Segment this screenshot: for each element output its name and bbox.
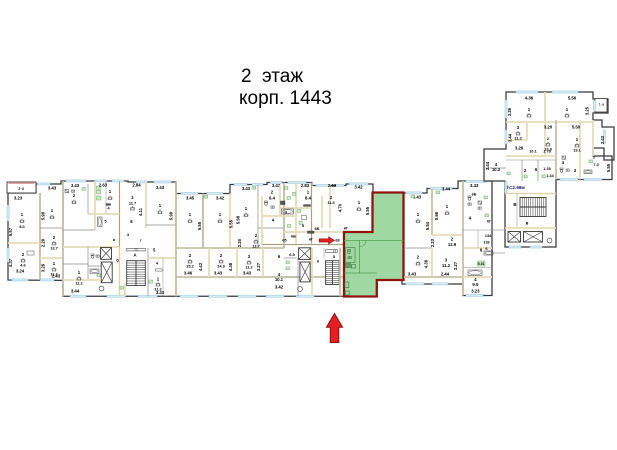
svg-text:2.84: 2.84 <box>132 183 141 188</box>
svg-text:в: в <box>526 221 529 226</box>
svg-text:4.6: 4.6 <box>20 263 26 268</box>
svg-text:3.46: 3.46 <box>184 270 193 275</box>
svg-text:5.55: 5.55 <box>197 221 202 230</box>
svg-text:13.7: 13.7 <box>252 244 260 249</box>
svg-text:2.63: 2.63 <box>99 182 108 187</box>
svg-text:3.23: 3.23 <box>14 196 23 201</box>
svg-text:2.83: 2.83 <box>301 183 310 188</box>
svg-text:13.7: 13.7 <box>50 246 58 251</box>
svg-text:2.20: 2.20 <box>237 238 242 247</box>
svg-text:8.4: 8.4 <box>305 196 312 201</box>
svg-text:3.43: 3.43 <box>71 183 80 188</box>
svg-text:3.44: 3.44 <box>71 289 80 294</box>
svg-text:8.0: 8.0 <box>19 225 24 229</box>
svg-text:3.43: 3.43 <box>600 135 605 144</box>
svg-text:14.9: 14.9 <box>217 264 225 269</box>
svg-text:3.43: 3.43 <box>156 185 165 190</box>
svg-text:5.55: 5.55 <box>365 206 370 215</box>
svg-text:11.6: 11.6 <box>327 200 335 205</box>
svg-text:5.56: 5.56 <box>434 211 439 220</box>
svg-text:6.5: 6.5 <box>289 252 295 257</box>
svg-text:3.44: 3.44 <box>485 161 490 170</box>
svg-text:4.38: 4.38 <box>424 259 429 268</box>
svg-text:5.54: 5.54 <box>425 221 430 230</box>
svg-text:4.11: 4.11 <box>138 207 143 216</box>
svg-text:3.27: 3.27 <box>256 262 261 271</box>
svg-text:3.45: 3.45 <box>186 196 195 201</box>
svg-text:1-а: 1-а <box>599 103 605 107</box>
svg-text:3.24: 3.24 <box>16 269 25 274</box>
svg-text:133: 133 <box>483 241 489 245</box>
svg-text:этаж: этаж <box>262 66 303 87</box>
svg-text:4.70: 4.70 <box>338 203 343 212</box>
svg-text:3.42: 3.42 <box>354 185 363 190</box>
svg-text:3.26: 3.26 <box>515 146 524 151</box>
svg-text:2.63: 2.63 <box>328 183 337 188</box>
svg-text:3.27: 3.27 <box>453 261 458 270</box>
svg-text:3.44: 3.44 <box>508 133 513 142</box>
svg-text:6Г: 6Г <box>487 220 491 224</box>
svg-text:11.2: 11.2 <box>442 263 451 268</box>
svg-text:134: 134 <box>485 234 492 238</box>
svg-text:3.28: 3.28 <box>41 263 46 272</box>
svg-text:4.37: 4.37 <box>8 258 13 267</box>
svg-text:5.56: 5.56 <box>568 96 577 101</box>
svg-text:1.34: 1.34 <box>546 174 554 178</box>
svg-text:10.1: 10.1 <box>275 277 284 282</box>
svg-text:9.5: 9.5 <box>472 282 479 287</box>
svg-text:68: 68 <box>335 239 339 243</box>
svg-text:5.57: 5.57 <box>8 227 13 236</box>
svg-text:6Б: 6Б <box>472 192 477 196</box>
svg-text:h=2.68м: h=2.68м <box>507 185 525 190</box>
svg-text:10.3: 10.3 <box>492 167 501 172</box>
svg-text:19.1: 19.1 <box>573 148 581 153</box>
svg-text:3.42: 3.42 <box>275 285 284 290</box>
svg-text:11.2: 11.2 <box>245 265 253 270</box>
svg-text:корп. 1443: корп. 1443 <box>239 88 332 109</box>
svg-text:5.98: 5.98 <box>41 211 46 220</box>
svg-text:7.3: 7.3 <box>593 162 599 167</box>
svg-text:3.44: 3.44 <box>442 187 451 192</box>
svg-text:3.43: 3.43 <box>470 183 479 188</box>
svg-text:3.42: 3.42 <box>216 196 225 201</box>
svg-text:3.43: 3.43 <box>408 272 417 277</box>
svg-text:4.36: 4.36 <box>525 96 534 101</box>
svg-text:3-а: 3-а <box>18 186 25 191</box>
svg-text:4.43: 4.43 <box>198 262 203 271</box>
svg-text:3.20: 3.20 <box>544 125 553 130</box>
svg-text:3.26: 3.26 <box>507 107 512 116</box>
svg-text:5.01: 5.01 <box>478 262 485 266</box>
svg-text:3.43: 3.43 <box>214 270 223 275</box>
svg-text:5.98: 5.98 <box>236 215 241 224</box>
svg-text:3.43: 3.43 <box>243 270 252 275</box>
svg-text:1.35: 1.35 <box>543 167 550 171</box>
svg-text:3.43: 3.43 <box>156 290 165 295</box>
svg-text:6Б: 6Б <box>314 226 319 231</box>
svg-text:11.3: 11.3 <box>514 136 522 141</box>
svg-text:11.7: 11.7 <box>129 201 136 206</box>
svg-text:15.2: 15.2 <box>186 264 194 269</box>
svg-text:2.23: 2.23 <box>430 238 435 247</box>
svg-text:2: 2 <box>241 66 252 87</box>
svg-text:65: 65 <box>282 239 286 243</box>
svg-text:2.43: 2.43 <box>52 274 61 279</box>
svg-text:3.23: 3.23 <box>471 288 480 293</box>
svg-text:11.2: 11.2 <box>75 281 83 286</box>
svg-text:12.9: 12.9 <box>448 242 457 247</box>
svg-text:3.43: 3.43 <box>48 186 57 191</box>
svg-text:2.29: 2.29 <box>41 238 46 247</box>
svg-text:1.7а: 1.7а <box>543 150 551 154</box>
svg-text:5.50: 5.50 <box>572 125 581 130</box>
svg-text:3.25: 3.25 <box>585 106 590 115</box>
svg-text:5.55: 5.55 <box>229 219 234 228</box>
svg-text:5.55: 5.55 <box>606 163 611 172</box>
svg-text:4.38: 4.38 <box>228 262 233 271</box>
svg-text:2.44: 2.44 <box>441 272 450 277</box>
svg-text:6Б: 6Б <box>291 235 296 239</box>
svg-text:3.43: 3.43 <box>242 186 251 191</box>
svg-text:10.1: 10.1 <box>529 150 536 154</box>
svg-text:5.98: 5.98 <box>169 211 174 220</box>
svg-text:6.4: 6.4 <box>269 196 276 201</box>
